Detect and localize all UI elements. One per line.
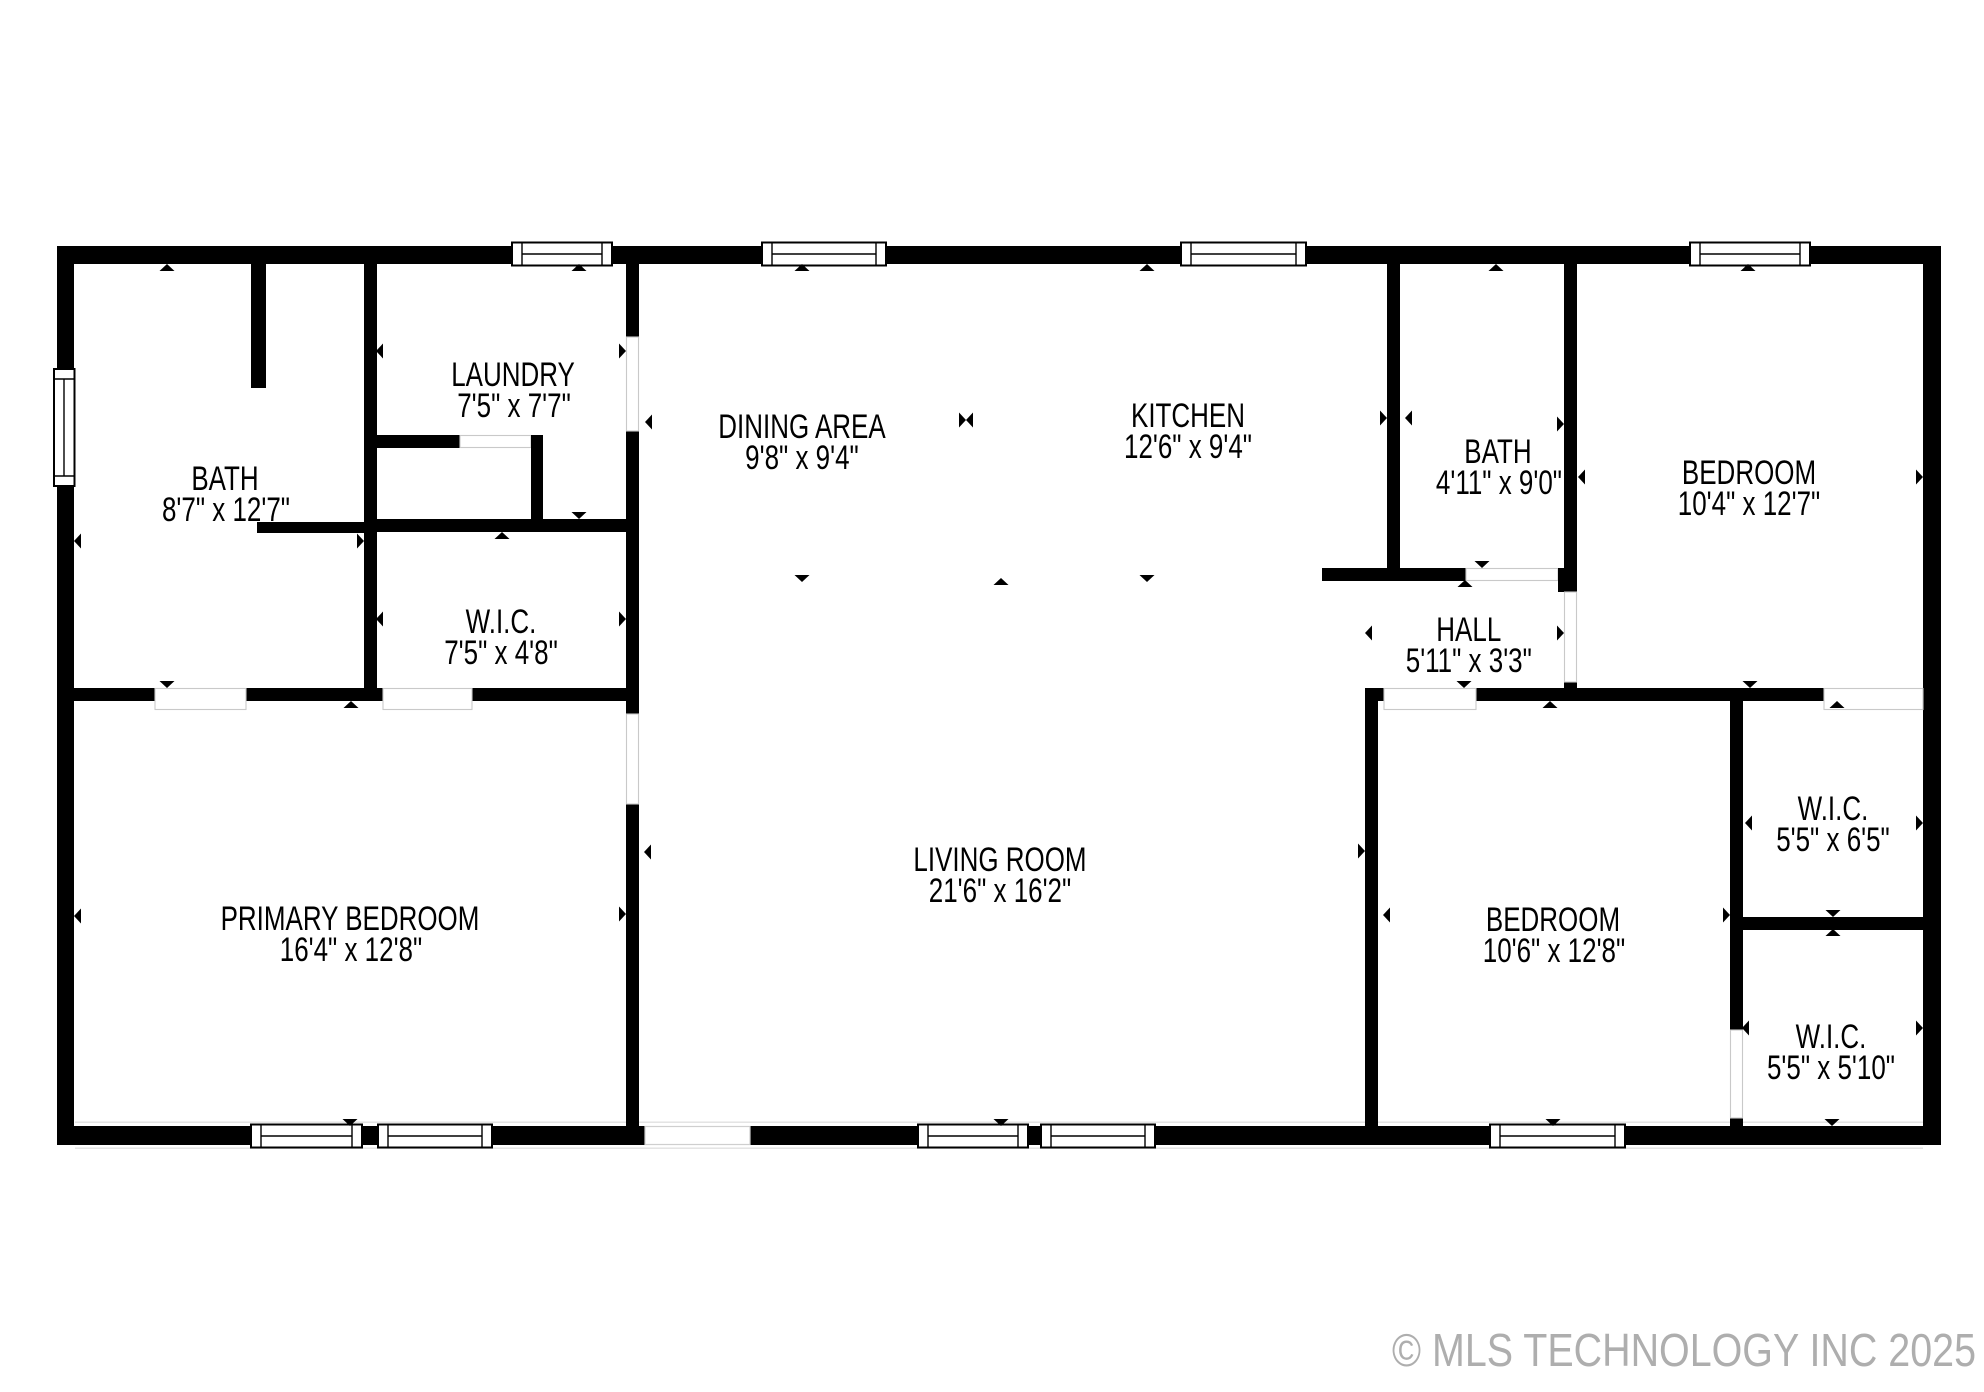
svg-text:7'5" x 7'7": 7'5" x 7'7" (457, 388, 571, 425)
svg-text:10'4" x 12'7": 10'4" x 12'7" (1678, 486, 1820, 523)
svg-text:8'7" x 12'7": 8'7" x 12'7" (162, 492, 290, 529)
svg-text:4'11" x 9'0": 4'11" x 9'0" (1436, 465, 1562, 502)
svg-text:12'6" x 9'4": 12'6" x 9'4" (1124, 429, 1252, 466)
svg-text:7'5" x 4'8": 7'5" x 4'8" (444, 635, 558, 672)
svg-text:9'8" x 9'4": 9'8" x 9'4" (745, 440, 859, 477)
svg-text:© MLS TECHNOLOGY INC 2025: © MLS TECHNOLOGY INC 2025 (1392, 1324, 1976, 1376)
svg-text:5'5" x 5'10": 5'5" x 5'10" (1767, 1050, 1895, 1087)
svg-text:21'6" x 16'2": 21'6" x 16'2" (929, 873, 1071, 910)
svg-text:5'5" x 6'5": 5'5" x 6'5" (1776, 822, 1890, 859)
svg-text:5'11" x 3'3": 5'11" x 3'3" (1406, 643, 1532, 680)
svg-text:16'4" x 12'8": 16'4" x 12'8" (280, 932, 422, 969)
svg-text:10'6" x 12'8": 10'6" x 12'8" (1483, 933, 1625, 970)
